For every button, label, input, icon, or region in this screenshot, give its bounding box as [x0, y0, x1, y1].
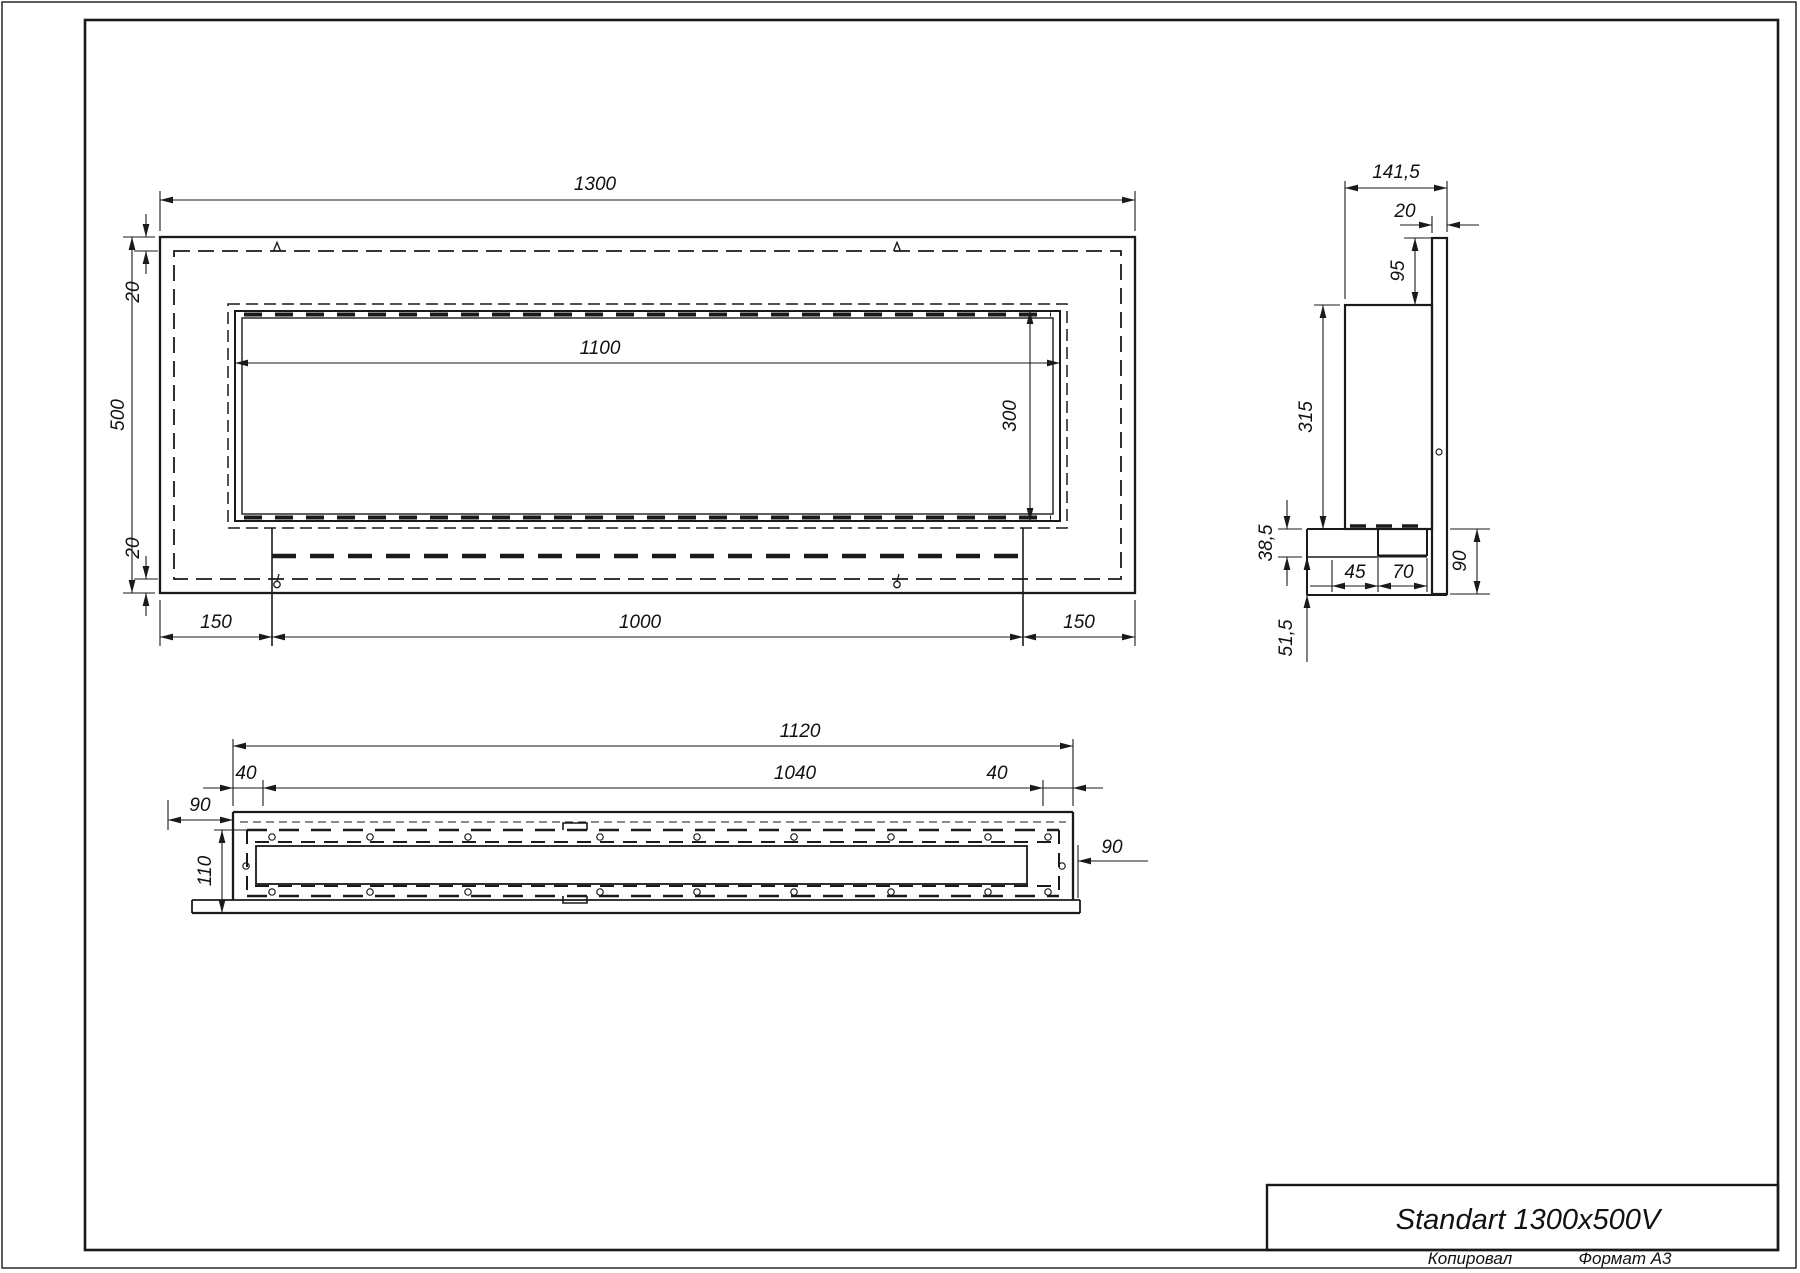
front-opening-frame: [235, 311, 1060, 521]
side-dim-bottom-drop: 51,5: [1276, 557, 1310, 662]
dim-label-20-bottom: 20: [123, 537, 144, 560]
dim-label-110: 110: [195, 855, 216, 886]
front-view: 1300 500 20 20: [108, 174, 1135, 646]
front-dim-bottom-row: 150 1000 150: [160, 600, 1135, 646]
dim-label-70: 70: [1392, 562, 1414, 583]
front-hidden-plate: [174, 251, 1121, 579]
side-flange-hole: [1436, 449, 1442, 455]
bottom-dim-offset-right: 90: [1078, 837, 1148, 898]
dim-label-500: 500: [108, 399, 129, 431]
dim-label-20-flange: 20: [1393, 201, 1416, 222]
dim-label-1100: 1100: [580, 338, 621, 359]
side-notch: [1378, 529, 1427, 556]
bottom-view: 1120 1040 40 40 90 1: [168, 721, 1148, 913]
front-dim-opening-height: 300: [1000, 311, 1033, 521]
footer-format-label: Формат А3: [1578, 1249, 1672, 1268]
bottom-burner-tray: [256, 846, 1027, 884]
drawing-sheet: 1300 500 20 20: [0, 0, 1800, 1273]
dim-label-90-right: 90: [1101, 837, 1123, 858]
drawing-title: Standart 1300x500V: [1396, 1204, 1663, 1236]
dim-label-150-right: 150: [1063, 612, 1095, 633]
dim-label-300: 300: [1000, 400, 1021, 432]
dim-label-20-top: 20: [123, 281, 144, 304]
side-dim-notch-row: 45 70: [1310, 558, 1427, 592]
side-dim-body-height: 315: [1296, 305, 1340, 529]
dim-label-40-left: 40: [235, 763, 257, 784]
front-dim-offset-top: 20: [123, 214, 158, 304]
dim-label-38-5: 38,5: [1256, 524, 1277, 561]
keyhole-marks-bottom: [274, 574, 900, 588]
title-block: Standart 1300x500V: [1267, 1185, 1778, 1250]
side-view: 141,5 20 95 315: [1256, 162, 1490, 662]
front-opening-inner: [242, 318, 1053, 514]
side-body: [1345, 305, 1432, 529]
side-dim-flange-top-height: 95: [1388, 238, 1432, 305]
bottom-dim-offset-left: 90: [168, 795, 233, 830]
front-opening-hidden: [228, 304, 1067, 528]
drawing-frame: [85, 20, 1778, 1250]
side-dim-flange-thickness: 20: [1393, 201, 1479, 233]
dim-label-90-left: 90: [189, 795, 211, 816]
dim-label-45: 45: [1344, 562, 1366, 583]
front-dim-opening-width: 1100: [235, 338, 1060, 366]
sheet-border: [2, 2, 1796, 1268]
bottom-dim-plate-width: 1120: [233, 721, 1073, 806]
dim-label-1000: 1000: [619, 612, 662, 633]
bottom-hole-row-bottom: [269, 889, 1051, 895]
dim-label-1300: 1300: [574, 174, 617, 195]
side-dim-flange-bottom-height: 90: [1450, 529, 1490, 594]
dim-label-95: 95: [1388, 260, 1409, 282]
keyhole-marks-top: [274, 243, 901, 252]
technical-drawing-canvas: 1300 500 20 20: [0, 0, 1800, 1273]
front-dim-offset-bottom: 20: [123, 537, 158, 616]
dim-label-51-5: 51,5: [1276, 619, 1297, 656]
sheet-footer: Копировал Формат А3: [1428, 1249, 1672, 1268]
bottom-hole-row-top: [269, 834, 1051, 840]
dim-label-1040: 1040: [774, 763, 817, 784]
dim-label-150-left: 150: [200, 612, 232, 633]
side-flange: [1432, 238, 1447, 594]
dim-label-40-right: 40: [986, 763, 1008, 784]
dim-label-141-5: 141,5: [1372, 162, 1420, 183]
bottom-dim-inner-row: 1040 40 40: [203, 763, 1103, 806]
front-outer-body: [160, 237, 1135, 593]
dim-label-315: 315: [1296, 401, 1317, 433]
dim-label-90-side: 90: [1450, 550, 1471, 572]
footer-copied-label: Копировал: [1428, 1249, 1513, 1268]
dim-label-1120: 1120: [780, 721, 821, 742]
side-dim-shelf-thickness: 38,5: [1256, 500, 1302, 586]
front-dim-total-width: 1300: [160, 174, 1135, 231]
